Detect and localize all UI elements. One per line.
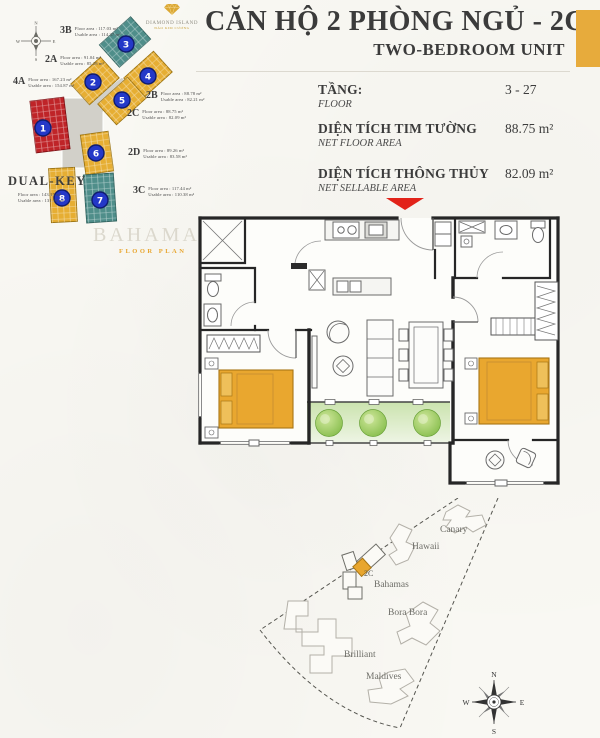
site-map: N E S W Canary Hawaii 2C Bahamas Bora Bo… xyxy=(240,498,570,738)
unit-label-2B: 2BFloor area : 88.78 m²Usable area : 82.… xyxy=(146,90,204,108)
info-row-net-sellable-area: DIỆN TÍCH THÔNG THỦY NET SELLABLE AREA 8… xyxy=(318,166,573,194)
watermark-floor-plan: FLOOR PLAN xyxy=(119,248,186,255)
header-divider xyxy=(196,71,570,72)
badge-2: 2 xyxy=(85,74,101,90)
page-subtitle: TWO-BEDROOM UNIT xyxy=(205,40,565,60)
tv-console xyxy=(312,336,317,388)
info-value: 88.75 m² xyxy=(505,121,553,137)
sitemap-compass-icon: N E S W xyxy=(462,670,524,736)
balcony-planter xyxy=(305,400,450,446)
svg-text:7: 7 xyxy=(97,196,103,206)
badge-4: 4 xyxy=(140,68,156,84)
tower-label-maldives: Maldives xyxy=(366,672,401,682)
info-value: 82.09 m² xyxy=(505,166,553,182)
svg-text:5: 5 xyxy=(119,96,125,106)
site-map-drawing: N E S W xyxy=(240,498,570,738)
info-label-en: NET FLOOR AREA xyxy=(318,138,573,149)
svg-text:1: 1 xyxy=(40,124,46,134)
info-row-net-floor-area: DIỆN TÍCH TIM TƯỜNG NET FLOOR AREA 88.75… xyxy=(318,121,573,149)
gold-accent-bar xyxy=(576,10,600,67)
tower-label-borabora: Bora Bora xyxy=(388,608,427,618)
unit-label-4A: 4AFloor area : 167.23 m²Usable area : 15… xyxy=(13,76,74,94)
svg-text:2: 2 xyxy=(90,78,96,88)
unit-2c-label: 2C xyxy=(364,569,373,578)
floor-plan-drawing xyxy=(195,208,567,504)
svg-text:E: E xyxy=(520,698,525,707)
tower-label-canary: Canary xyxy=(440,525,467,535)
balcony-plants xyxy=(316,410,441,437)
svg-text:4: 4 xyxy=(145,72,151,82)
svg-text:3: 3 xyxy=(123,40,129,50)
tower-label-hawaii: Hawaii xyxy=(412,542,439,552)
floorplan-sheet: CĂN HỘ 2 PHÒNG NGỦ - 2C TWO-BEDROOM UNIT… xyxy=(0,0,600,738)
svg-text:6: 6 xyxy=(93,149,99,159)
info-value: 3 - 27 xyxy=(505,82,537,98)
unit-label-dual-key-areas: Floor area : 143.15 m²Usable area : 131.… xyxy=(18,191,64,209)
badge-1: 1 xyxy=(35,120,51,136)
svg-text:S: S xyxy=(35,57,38,62)
unit-label-dual-key: DUAL-KEY xyxy=(8,174,87,192)
brand-logo: DIAMOND ISLAND ĐẢO KIM CƯƠNG xyxy=(142,2,202,30)
svg-text:E: E xyxy=(53,39,56,44)
svg-text:S: S xyxy=(492,727,496,736)
diamond-icon xyxy=(164,4,180,15)
svg-text:N: N xyxy=(491,670,497,679)
info-label-en: NET SELLABLE AREA xyxy=(318,183,573,194)
unit-label-2A: 2AFloor area : 91.04 m²Usable area : 85.… xyxy=(45,54,104,72)
badge-5: 5 xyxy=(114,92,130,108)
badge-7: 7 xyxy=(92,192,108,208)
key-plan: 1 2 3 4 5 6 7 8 N E S W xyxy=(0,0,200,266)
tower-brilliant xyxy=(284,601,352,673)
unit-label-2D: 2DFloor area : 89.26 m²Usable area : 83.… xyxy=(128,147,187,165)
svg-text:N: N xyxy=(34,21,38,26)
unit-label-3B: 3BFloor area : 117.03 m²Usable area : 11… xyxy=(60,25,121,43)
svg-text:W: W xyxy=(16,39,21,44)
brand-tagline: ĐẢO KIM CƯƠNG xyxy=(142,26,202,30)
info-label-en: FLOOR xyxy=(318,99,573,110)
floor-plan xyxy=(195,208,567,504)
tower-label-brilliant: Brilliant xyxy=(344,650,376,660)
info-row-floor: TẦNG: FLOOR 3 - 27 xyxy=(318,82,573,110)
badge-6: 6 xyxy=(88,145,104,161)
armchair xyxy=(327,321,349,343)
unit-label-3C: 3CFloor area : 117.44 m²Usable area : 11… xyxy=(133,185,194,203)
unit-label-2C: 2CFloor area : 88.75 m²Usable area : 82.… xyxy=(127,108,186,126)
tower-label-bahamas: Bahamas xyxy=(374,580,409,590)
svg-text:W: W xyxy=(462,698,470,707)
page-title: CĂN HỘ 2 PHÒNG NGỦ - 2C xyxy=(205,6,570,38)
